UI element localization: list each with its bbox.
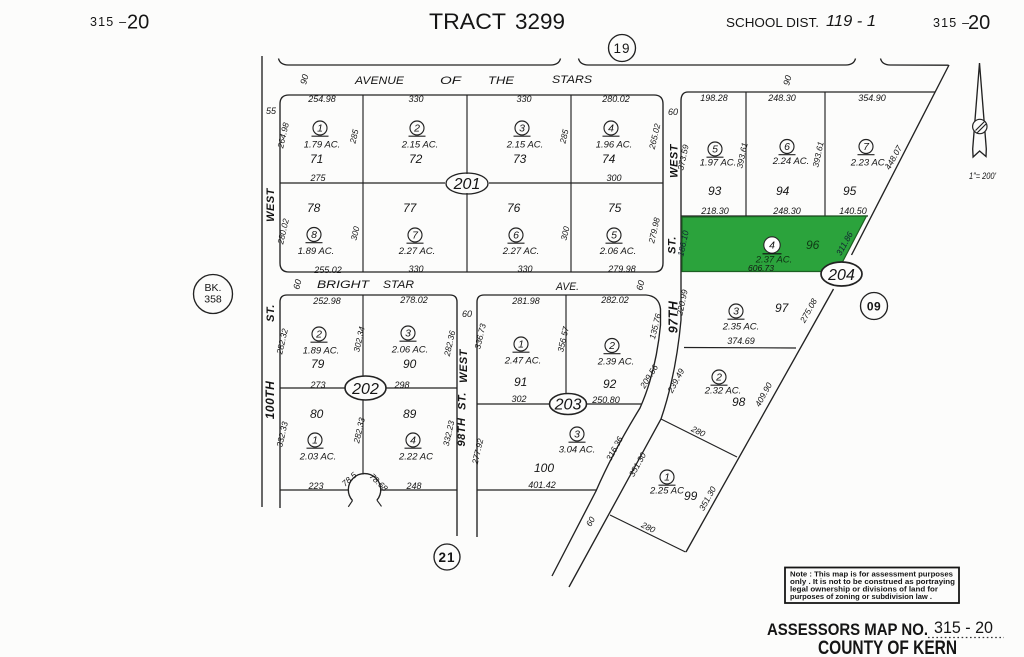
svg-text:281.98: 281.98 bbox=[511, 296, 540, 306]
svg-text:55: 55 bbox=[266, 106, 277, 116]
svg-text:100: 100 bbox=[534, 461, 554, 475]
svg-text:198.28: 198.28 bbox=[700, 93, 728, 103]
svg-text:94: 94 bbox=[776, 184, 790, 198]
svg-text:255.02: 255.02 bbox=[313, 265, 342, 275]
svg-text:1.79 AC.: 1.79 AC. bbox=[304, 140, 341, 151]
svg-text:STAR: STAR bbox=[383, 279, 414, 291]
svg-text:2: 2 bbox=[608, 340, 615, 352]
svg-text:1.97 AC.: 1.97 AC. bbox=[700, 158, 737, 169]
svg-text:280.02: 280.02 bbox=[601, 94, 630, 104]
svg-text:273: 273 bbox=[309, 380, 325, 390]
svg-text:3: 3 bbox=[405, 328, 411, 340]
svg-text:1.89 AC.: 1.89 AC. bbox=[298, 246, 335, 257]
svg-text:SCHOOL DIST.: SCHOOL DIST. bbox=[726, 15, 819, 30]
svg-text:98: 98 bbox=[732, 395, 746, 409]
svg-text:71: 71 bbox=[310, 152, 323, 166]
svg-text:330: 330 bbox=[408, 94, 423, 104]
svg-text:2.06 AC.: 2.06 AC. bbox=[391, 345, 429, 356]
svg-text:252.98: 252.98 bbox=[312, 296, 341, 306]
svg-text:BRIGHT: BRIGHT bbox=[317, 279, 371, 291]
svg-text:20: 20 bbox=[127, 12, 149, 34]
svg-text:97: 97 bbox=[775, 301, 790, 315]
svg-text:315 –: 315 – bbox=[90, 15, 127, 29]
svg-text:302: 302 bbox=[511, 394, 526, 404]
svg-text:93: 93 bbox=[708, 184, 722, 198]
svg-text:5: 5 bbox=[712, 144, 718, 156]
svg-text:OF: OF bbox=[440, 75, 463, 87]
svg-text:1: 1 bbox=[317, 123, 323, 135]
svg-text:09: 09 bbox=[867, 300, 881, 314]
svg-text:2.35 AC.: 2.35 AC. bbox=[722, 322, 760, 333]
svg-text:401.42: 401.42 bbox=[528, 480, 556, 490]
svg-text:92: 92 bbox=[603, 377, 617, 391]
svg-text:203: 203 bbox=[554, 397, 582, 414]
svg-text:275: 275 bbox=[309, 173, 326, 183]
svg-text:2: 2 bbox=[315, 329, 322, 341]
svg-text:AVE.: AVE. bbox=[555, 281, 579, 293]
svg-text:98TH: 98TH bbox=[456, 417, 468, 446]
svg-text:BK.: BK. bbox=[205, 282, 222, 294]
svg-text:60: 60 bbox=[668, 107, 678, 117]
svg-text:100TH: 100TH bbox=[263, 381, 277, 420]
svg-text:4: 4 bbox=[410, 435, 416, 447]
svg-text:3.04 AC.: 3.04 AC. bbox=[559, 445, 596, 456]
svg-text:90: 90 bbox=[403, 357, 417, 371]
svg-text:2.22 AC: 2.22 AC bbox=[398, 452, 433, 463]
svg-text:2.47 AC.: 2.47 AC. bbox=[504, 356, 542, 367]
svg-text:140.50: 140.50 bbox=[839, 206, 867, 216]
svg-text:254.98: 254.98 bbox=[307, 94, 336, 104]
svg-text:315 –: 315 – bbox=[933, 16, 970, 30]
svg-text:75: 75 bbox=[608, 201, 622, 215]
svg-text:2.25 AC: 2.25 AC bbox=[649, 486, 684, 497]
svg-text:358: 358 bbox=[204, 294, 222, 306]
svg-text:1: 1 bbox=[312, 435, 318, 447]
svg-text:THE: THE bbox=[488, 75, 515, 87]
svg-text:WEST: WEST bbox=[265, 187, 277, 222]
svg-text:330: 330 bbox=[516, 94, 531, 104]
svg-text:60: 60 bbox=[462, 309, 472, 319]
svg-text:4: 4 bbox=[608, 123, 614, 135]
svg-text:TRACT: TRACT bbox=[429, 9, 506, 34]
svg-text:WEST: WEST bbox=[458, 348, 470, 383]
svg-text:3: 3 bbox=[574, 429, 580, 441]
svg-text:300: 300 bbox=[606, 173, 621, 183]
svg-text:374.69: 374.69 bbox=[727, 336, 755, 346]
svg-text:1: 1 bbox=[664, 472, 670, 484]
svg-text:72: 72 bbox=[409, 152, 423, 166]
svg-text:2.15 AC.: 2.15 AC. bbox=[506, 140, 544, 151]
svg-text:ST.: ST. bbox=[265, 304, 277, 322]
svg-text:2.39 AC.: 2.39 AC. bbox=[597, 357, 635, 368]
svg-text:3: 3 bbox=[519, 123, 525, 135]
svg-text:2: 2 bbox=[715, 372, 722, 384]
svg-text:21: 21 bbox=[438, 550, 455, 565]
svg-text:20: 20 bbox=[968, 12, 990, 34]
svg-text:AVENUE: AVENUE bbox=[354, 75, 405, 87]
svg-text:2: 2 bbox=[413, 123, 420, 135]
svg-text:3299: 3299 bbox=[515, 9, 565, 34]
svg-text:2.06 AC.: 2.06 AC. bbox=[599, 246, 637, 257]
svg-text:96: 96 bbox=[806, 238, 820, 252]
svg-text:78: 78 bbox=[307, 201, 321, 215]
svg-text:202: 202 bbox=[351, 381, 379, 398]
svg-text:73: 73 bbox=[513, 152, 527, 166]
svg-text:STARS: STARS bbox=[552, 74, 593, 86]
svg-text:248.30: 248.30 bbox=[772, 206, 801, 216]
svg-text:2.27 AC.: 2.27 AC. bbox=[398, 246, 436, 257]
svg-text:354.90: 354.90 bbox=[858, 93, 886, 103]
svg-text:76: 76 bbox=[507, 201, 521, 215]
svg-text:223: 223 bbox=[307, 481, 323, 491]
svg-text:119 - 1: 119 - 1 bbox=[826, 13, 876, 30]
svg-text:279.98: 279.98 bbox=[607, 264, 636, 274]
svg-text:248: 248 bbox=[405, 481, 421, 491]
svg-text:204: 204 bbox=[827, 267, 855, 284]
svg-text:1"= 200': 1"= 200' bbox=[969, 171, 996, 181]
svg-text:ST.: ST. bbox=[457, 392, 469, 410]
svg-text:315 - 20: 315 - 20 bbox=[934, 619, 993, 637]
svg-text:2.27 AC.: 2.27 AC. bbox=[502, 246, 540, 257]
svg-text:606.73: 606.73 bbox=[748, 263, 774, 273]
svg-text:79: 79 bbox=[311, 357, 325, 371]
svg-text:278.02: 278.02 bbox=[399, 295, 428, 305]
svg-text:3: 3 bbox=[733, 306, 739, 318]
svg-text:2.15 AC.: 2.15 AC. bbox=[401, 140, 439, 151]
svg-text:298: 298 bbox=[393, 380, 409, 390]
svg-text:6: 6 bbox=[784, 141, 790, 153]
svg-text:95: 95 bbox=[843, 184, 857, 198]
svg-text:89: 89 bbox=[403, 407, 417, 421]
svg-text:2.24 AC.: 2.24 AC. bbox=[772, 156, 810, 167]
svg-text:248.30: 248.30 bbox=[767, 93, 796, 103]
svg-text:91: 91 bbox=[514, 375, 527, 389]
svg-text:2.03 AC.: 2.03 AC. bbox=[299, 452, 337, 463]
svg-text:74: 74 bbox=[602, 152, 616, 166]
svg-text:1: 1 bbox=[518, 339, 524, 351]
svg-text:77: 77 bbox=[403, 201, 418, 215]
svg-text:6: 6 bbox=[513, 230, 519, 242]
svg-text:1.96 AC.: 1.96 AC. bbox=[596, 140, 633, 151]
svg-text:218.30: 218.30 bbox=[700, 206, 729, 216]
svg-text:250.80: 250.80 bbox=[591, 395, 620, 405]
svg-text:5: 5 bbox=[611, 230, 617, 242]
svg-text:282.02: 282.02 bbox=[600, 295, 629, 305]
svg-text:8: 8 bbox=[311, 229, 317, 241]
svg-text:4: 4 bbox=[769, 240, 775, 252]
svg-text:330: 330 bbox=[408, 264, 423, 274]
svg-text:COUNTY OF KERN: COUNTY OF KERN bbox=[818, 637, 957, 657]
svg-text:1.89 AC.: 1.89 AC. bbox=[303, 346, 340, 357]
svg-text:99: 99 bbox=[684, 489, 698, 503]
svg-text:330: 330 bbox=[517, 264, 532, 274]
svg-text:purposes of zoning or subdivis: purposes of zoning or subdivision law . bbox=[790, 592, 932, 601]
svg-text:19: 19 bbox=[613, 41, 630, 56]
svg-text:201: 201 bbox=[453, 176, 481, 193]
svg-text:80: 80 bbox=[310, 407, 324, 421]
